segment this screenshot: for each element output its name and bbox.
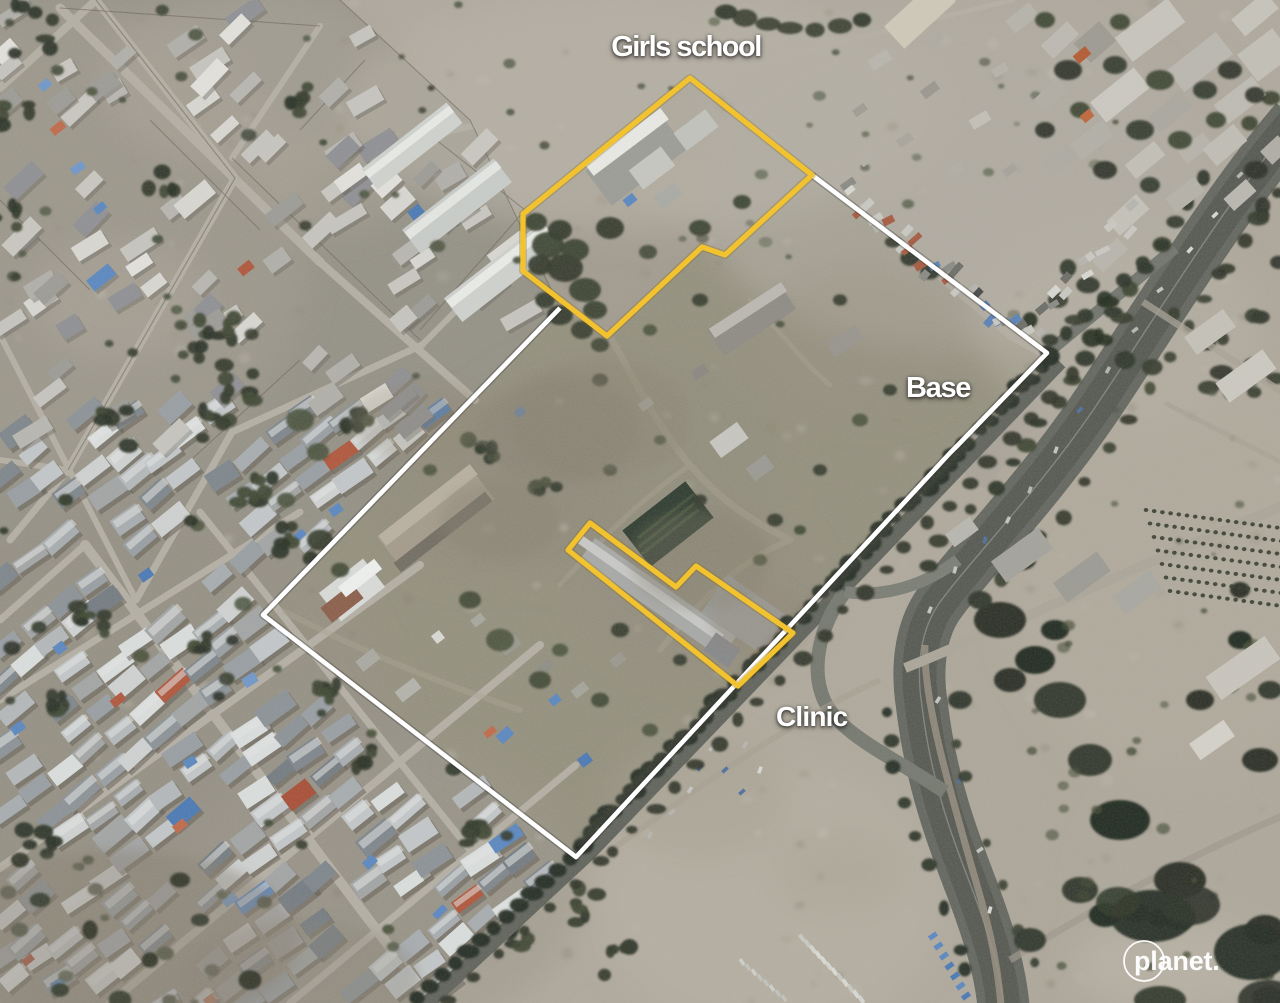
svg-text:planet.: planet. (1134, 946, 1220, 976)
svg-text:Girls school: Girls school (611, 31, 761, 63)
svg-text:Base: Base (906, 372, 971, 404)
svg-text:Clinic: Clinic (776, 701, 848, 732)
